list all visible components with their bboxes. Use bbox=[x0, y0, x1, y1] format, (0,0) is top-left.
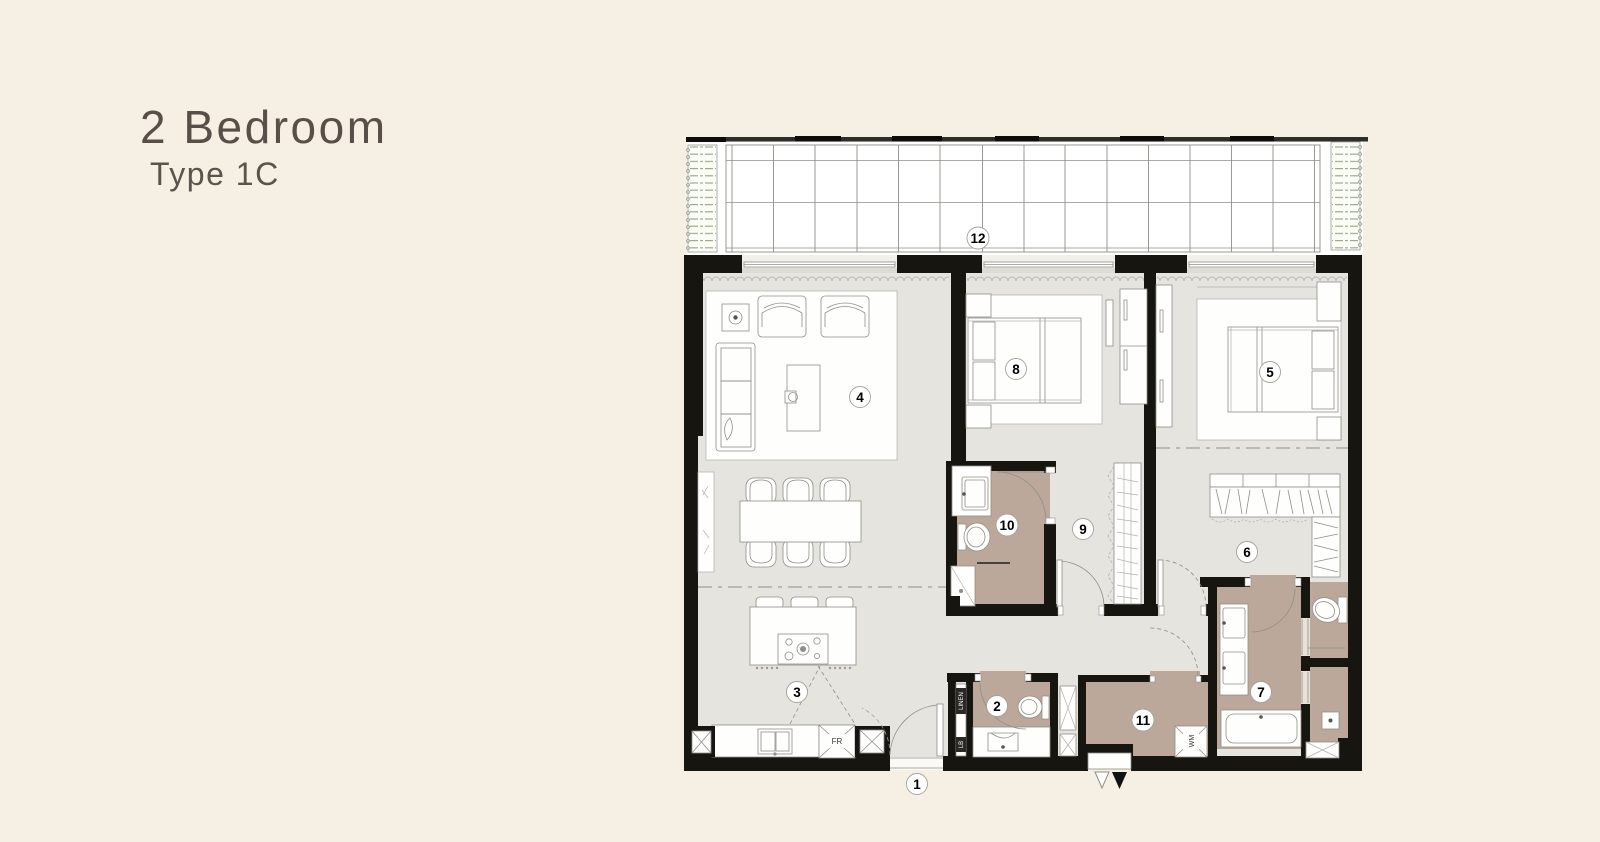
svg-text:WM: WM bbox=[1189, 735, 1196, 748]
svg-text:9: 9 bbox=[1079, 522, 1087, 537]
svg-text:FR: FR bbox=[832, 737, 843, 746]
svg-text:2 Bedroom: 2 Bedroom bbox=[140, 101, 388, 153]
svg-text:10: 10 bbox=[999, 518, 1014, 533]
svg-text:4: 4 bbox=[856, 390, 864, 405]
svg-text:8: 8 bbox=[1012, 362, 1020, 377]
svg-text:12: 12 bbox=[970, 231, 985, 246]
svg-text:5: 5 bbox=[1266, 365, 1274, 380]
svg-text:7: 7 bbox=[1257, 685, 1265, 700]
svg-text:LINEN: LINEN bbox=[959, 692, 965, 710]
svg-text:1: 1 bbox=[913, 777, 921, 792]
svg-text:LB: LB bbox=[959, 741, 965, 748]
svg-text:2: 2 bbox=[993, 699, 1001, 714]
svg-text:11: 11 bbox=[1136, 713, 1151, 728]
svg-text:6: 6 bbox=[1243, 545, 1251, 560]
svg-text:Type 1C: Type 1C bbox=[150, 156, 280, 192]
svg-text:3: 3 bbox=[793, 685, 801, 700]
